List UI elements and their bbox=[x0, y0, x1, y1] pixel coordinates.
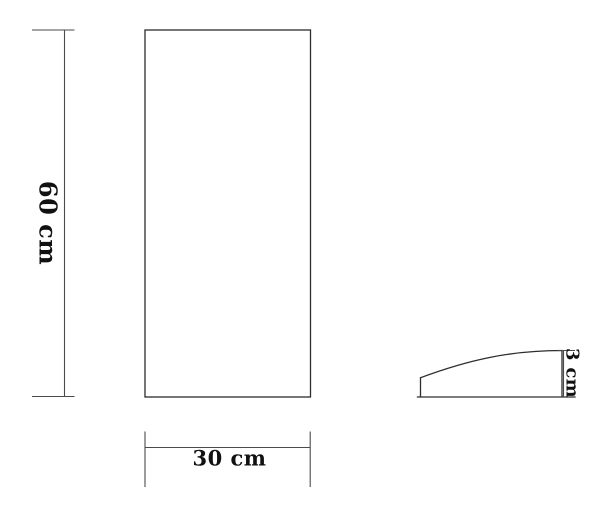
figure-canvas: 60 cm 30 cm 3 cm bbox=[0, 0, 616, 510]
height-dimension: 60 cm bbox=[32, 30, 75, 397]
height-dimension-label: 60 cm bbox=[34, 181, 63, 265]
thickness-dimension-label: 3 cm bbox=[562, 348, 583, 398]
front-view-outline bbox=[145, 30, 311, 397]
width-dimension: 30 cm bbox=[145, 432, 311, 488]
thickness-dimension: 3 cm bbox=[557, 348, 583, 398]
side-view-profile bbox=[418, 351, 576, 398]
width-dimension-label: 30 cm bbox=[192, 446, 266, 471]
dimensioned-drawing: 60 cm 30 cm 3 cm bbox=[0, 0, 616, 510]
